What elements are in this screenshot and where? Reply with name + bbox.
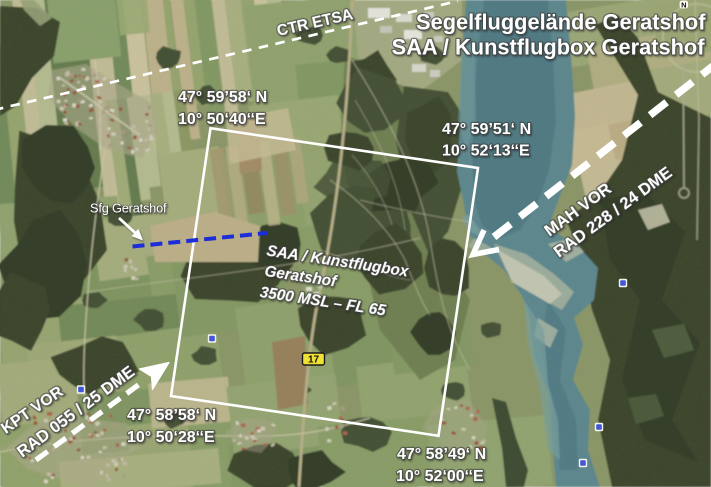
svg-text:47° 58’49‘ N: 47° 58’49‘ N [397, 446, 486, 463]
svg-text:10° 52‘00‘‘E: 10° 52‘00‘‘E [396, 468, 484, 485]
svg-text:47° 59’51‘ N: 47° 59’51‘ N [442, 121, 531, 138]
svg-text:N: N [681, 0, 686, 9]
svg-text:10° 50‘40‘‘E: 10° 50‘40‘‘E [178, 111, 266, 128]
svg-text:Sfg Geratshof: Sfg Geratshof [90, 201, 167, 216]
svg-text:17: 17 [308, 355, 320, 366]
svg-text:SAA / Kunstflugbox Geratshof: SAA / Kunstflugbox Geratshof [392, 35, 706, 60]
svg-text:10° 50‘28‘‘E: 10° 50‘28‘‘E [127, 429, 215, 446]
svg-text:Segelfluggelände Geratshof: Segelfluggelände Geratshof [416, 9, 706, 34]
svg-text:10° 52‘13‘‘E: 10° 52‘13‘‘E [442, 143, 530, 160]
svg-text:47° 59’58‘ N: 47° 59’58‘ N [178, 89, 267, 106]
svg-text:47° 58’58‘ N: 47° 58’58‘ N [127, 407, 216, 424]
